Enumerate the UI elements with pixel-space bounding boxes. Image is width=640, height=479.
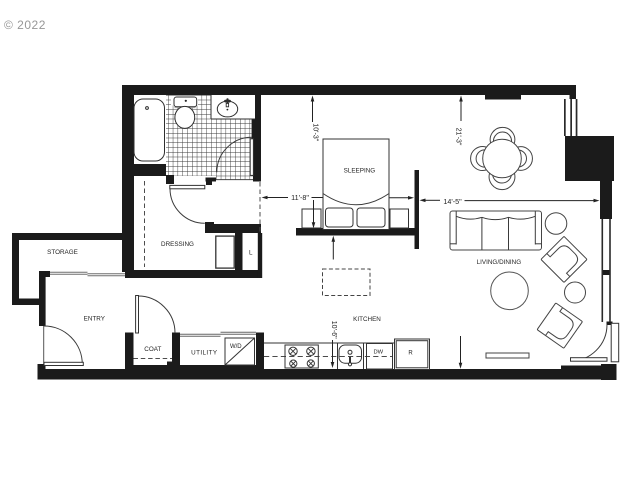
svg-text:10'-3": 10'-3" [312, 123, 319, 141]
svg-text:COAT: COAT [144, 346, 161, 353]
svg-text:DW: DW [373, 349, 383, 355]
svg-text:11'-8": 11'-8" [291, 193, 309, 202]
svg-text:10'-6": 10'-6" [330, 321, 337, 339]
svg-text:R: R [408, 351, 413, 357]
svg-text:LIVING/DINING: LIVING/DINING [477, 259, 522, 266]
svg-text:SLEEPING: SLEEPING [344, 167, 376, 174]
svg-text:KITCHEN: KITCHEN [353, 316, 381, 323]
svg-text:DRESSING: DRESSING [161, 241, 194, 248]
svg-text:14'-5": 14'-5" [443, 197, 462, 206]
svg-text:UTILITY: UTILITY [191, 349, 218, 356]
svg-text:W/D: W/D [230, 344, 242, 350]
svg-text:ENTRY: ENTRY [84, 315, 106, 322]
svg-text:© 2022: © 2022 [4, 18, 46, 32]
svg-text:21'-3": 21'-3" [454, 128, 461, 146]
svg-text:L: L [249, 250, 253, 257]
svg-text:STORAGE: STORAGE [47, 249, 78, 256]
